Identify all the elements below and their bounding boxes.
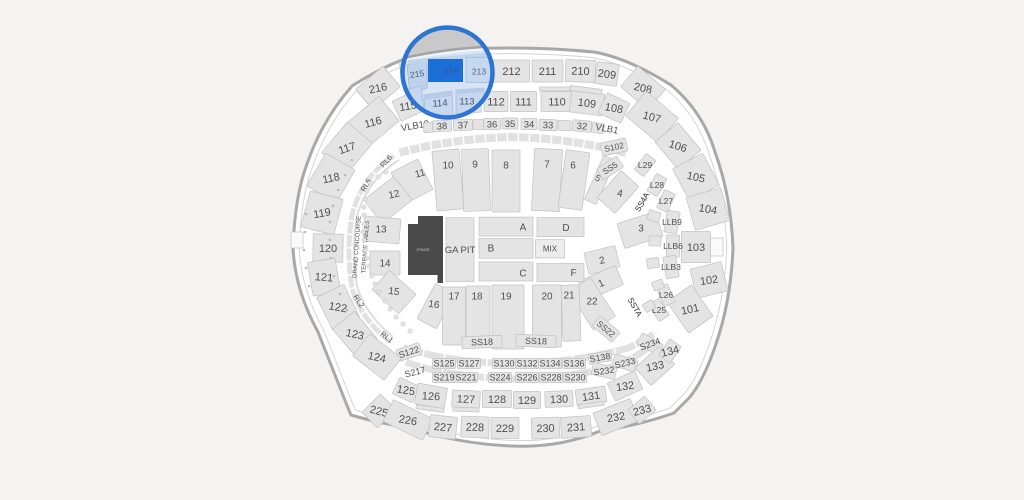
svg-text:LLB6: LLB6 (663, 241, 683, 251)
svg-text:7: 7 (544, 160, 550, 171)
svg-text:230: 230 (536, 423, 555, 436)
svg-text:MIX: MIX (543, 245, 558, 254)
svg-text:S219: S219 (433, 373, 454, 383)
svg-text:3: 3 (638, 224, 644, 235)
svg-text:S230: S230 (564, 373, 585, 383)
svg-text:120: 120 (319, 243, 337, 255)
svg-text:S221: S221 (455, 373, 476, 383)
svg-text:L26: L26 (659, 290, 673, 300)
svg-text:10: 10 (442, 161, 454, 172)
svg-text:C: C (519, 269, 526, 280)
svg-text:F: F (570, 268, 576, 279)
svg-text:33: 33 (542, 120, 553, 131)
svg-text:20: 20 (541, 292, 553, 303)
svg-text:103: 103 (687, 242, 705, 254)
svg-text:D: D (562, 223, 569, 234)
svg-text:A: A (520, 223, 527, 234)
svg-text:212: 212 (502, 66, 520, 78)
svg-text:32: 32 (576, 121, 587, 133)
svg-text:14: 14 (379, 259, 391, 270)
svg-text:21: 21 (563, 291, 575, 302)
svg-text:GA PIT: GA PIT (445, 245, 476, 256)
svg-text:210: 210 (571, 65, 590, 78)
svg-text:130: 130 (550, 394, 569, 407)
svg-text:228: 228 (466, 422, 485, 435)
svg-text:LLB3: LLB3 (661, 262, 681, 272)
svg-text:128: 128 (488, 394, 506, 406)
svg-text:17: 17 (448, 292, 460, 303)
svg-text:36: 36 (487, 119, 498, 130)
svg-text:34: 34 (524, 119, 535, 130)
svg-text:213: 213 (472, 67, 486, 77)
svg-text:109: 109 (577, 97, 597, 111)
svg-text:211: 211 (539, 66, 557, 78)
svg-text:227: 227 (433, 421, 453, 435)
svg-text:102: 102 (699, 274, 719, 288)
svg-text:214: 214 (443, 65, 458, 75)
svg-text:L28: L28 (650, 180, 664, 190)
svg-text:9: 9 (472, 160, 478, 171)
svg-text:6: 6 (570, 161, 576, 172)
svg-text:S226: S226 (516, 373, 537, 383)
svg-text:SS18: SS18 (471, 337, 493, 348)
svg-text:S224: S224 (489, 373, 510, 383)
svg-text:114: 114 (432, 98, 448, 110)
svg-text:S130: S130 (493, 359, 514, 369)
svg-text:129: 129 (518, 395, 536, 407)
svg-text:209: 209 (597, 68, 617, 82)
svg-text:15: 15 (388, 286, 401, 299)
svg-text:110: 110 (548, 96, 566, 108)
svg-text:S134: S134 (539, 359, 560, 369)
svg-text:111: 111 (515, 96, 532, 108)
svg-text:L29: L29 (638, 160, 652, 170)
svg-text:S228: S228 (540, 373, 561, 383)
svg-text:127: 127 (456, 393, 475, 406)
svg-text:112: 112 (487, 96, 505, 108)
svg-text:B: B (488, 244, 495, 255)
svg-text:37: 37 (458, 120, 469, 131)
svg-text:STAGE: STAGE (416, 247, 430, 252)
svg-text:S125: S125 (433, 359, 454, 369)
svg-text:16: 16 (428, 299, 441, 312)
svg-text:19: 19 (500, 292, 512, 303)
svg-text:35: 35 (505, 119, 516, 130)
svg-text:231: 231 (566, 421, 585, 434)
svg-text:126: 126 (421, 390, 440, 403)
svg-text:113: 113 (459, 96, 474, 107)
svg-text:18: 18 (471, 292, 483, 303)
svg-text:215: 215 (409, 68, 425, 80)
svg-text:22: 22 (586, 297, 598, 308)
svg-text:S132: S132 (516, 359, 537, 369)
svg-text:121: 121 (314, 271, 333, 285)
svg-text:L27: L27 (659, 196, 673, 206)
svg-text:13: 13 (375, 225, 387, 236)
svg-text:8: 8 (503, 161, 509, 172)
svg-text:229: 229 (496, 423, 514, 435)
svg-text:S136: S136 (563, 359, 584, 369)
svg-text:LLB9: LLB9 (662, 217, 682, 227)
svg-text:S127: S127 (458, 359, 479, 369)
svg-text:SS18: SS18 (525, 336, 547, 347)
svg-text:132: 132 (615, 380, 635, 394)
svg-text:38: 38 (436, 121, 447, 133)
